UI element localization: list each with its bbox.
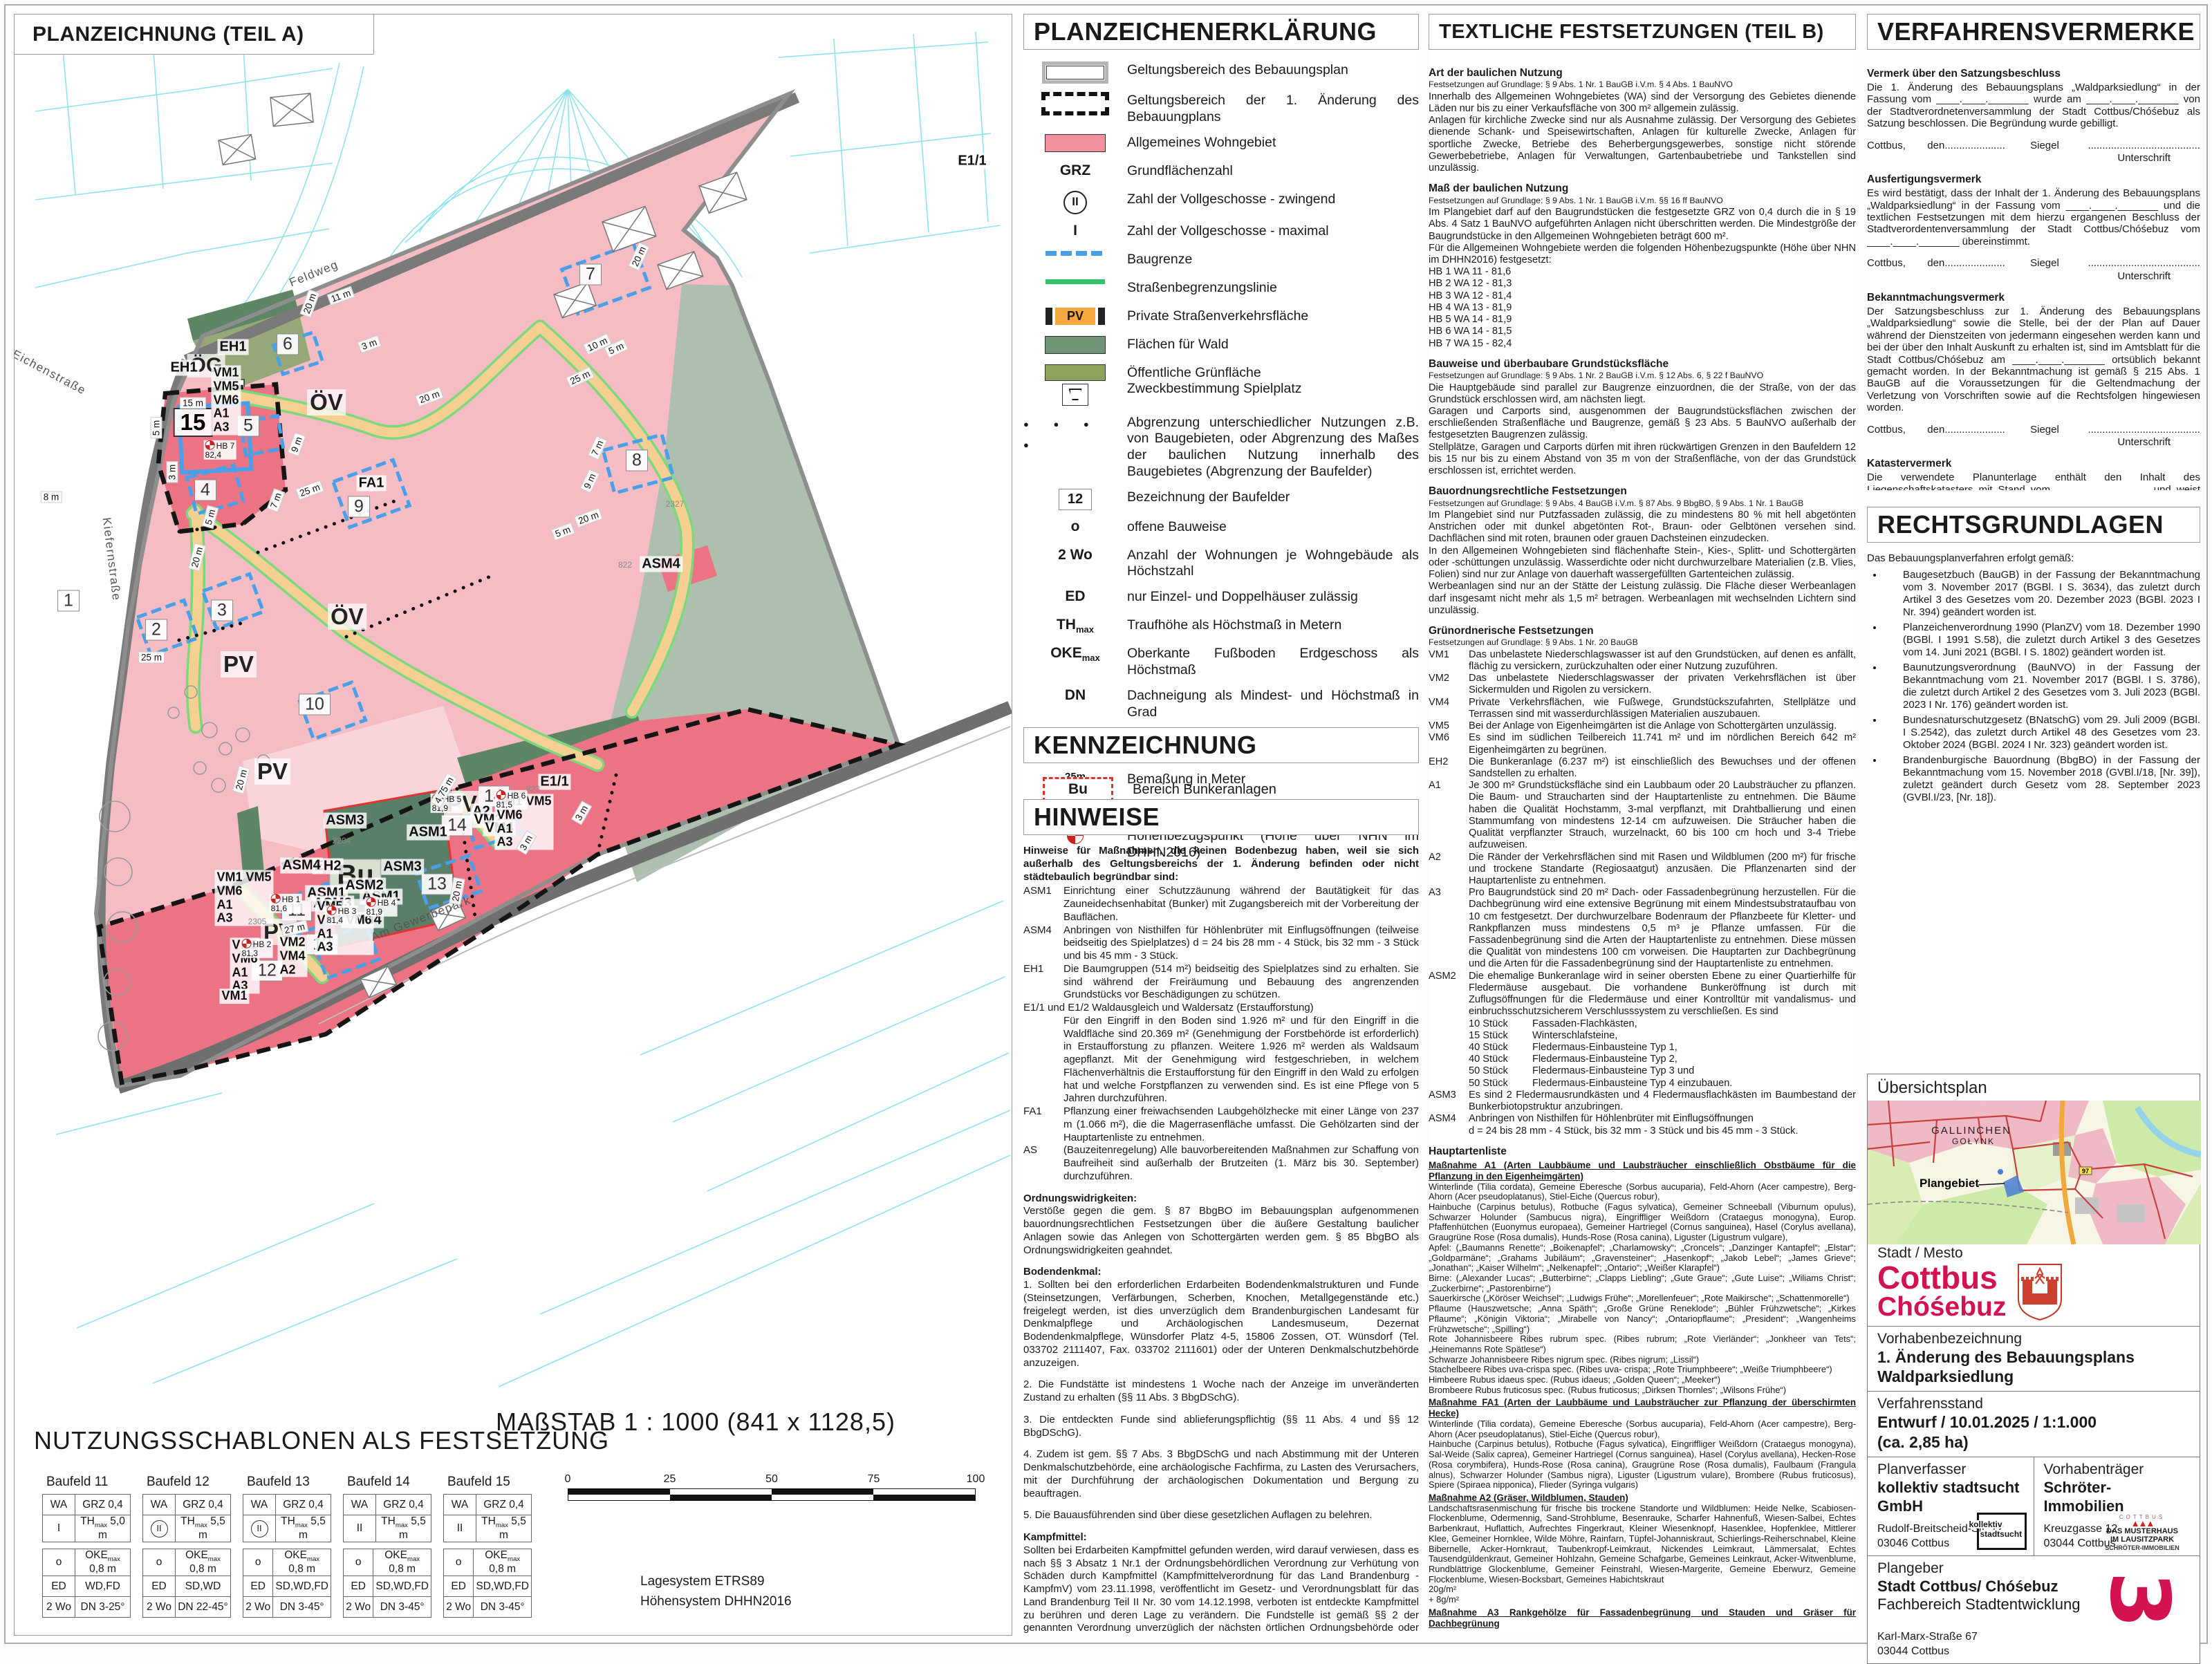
- map-label: ASM3: [381, 859, 424, 875]
- legend-symbol-text: ED: [1023, 588, 1127, 605]
- dimension-label: 5 m: [551, 523, 575, 541]
- legend-item: IIZahl der Vollgeschosse - zwingend: [1023, 190, 1419, 214]
- map-label: ASM3: [324, 813, 366, 829]
- baufeld-number: 15: [174, 408, 213, 437]
- stadt-name-sorbisch: Chóśebuz: [1877, 1293, 2006, 1322]
- legend-item: DNDachneigung als Mindest- und Höchstmaß…: [1023, 686, 1419, 721]
- legend-label: Baugrenze: [1127, 250, 1192, 268]
- dimension-label: 8 m: [41, 492, 62, 503]
- hinweise-title: HINWEISE: [1023, 799, 1419, 835]
- legend-label: Straßenbegrenzungslinie: [1127, 279, 1277, 297]
- right-column: VERFAHRENSVERMERKE Vermerk über den Satz…: [1867, 14, 2200, 1634]
- baufeld-number: 2: [145, 619, 167, 641]
- dimension-label: 20 m: [188, 543, 206, 571]
- plangeber-address: Karl-Marx-Straße 6703044 Cottbus: [1877, 1629, 2190, 1659]
- dimension-label: 20 m: [415, 387, 444, 407]
- lagesystem-line: Lagesystem ETRS89: [640, 1571, 792, 1591]
- dimension-label: 7 m: [267, 489, 285, 512]
- legend-label: Private Straßenverkehrsfläche: [1127, 307, 1308, 325]
- map-label: PV: [221, 651, 257, 677]
- rechtsgrundlagen-title: RECHTSGRUNDLAGEN: [1867, 507, 2200, 543]
- map-label: HB 2 81,3: [241, 939, 273, 958]
- map-label: 2204: [333, 836, 351, 845]
- baufeld-number: 8: [626, 450, 648, 471]
- legend-symbol-swatch: [1023, 335, 1127, 354]
- svg-text:GALLINCHEN: GALLINCHEN: [1931, 1125, 2011, 1137]
- legend-label: Öffentliche Grünfläche Zweckbestimmung S…: [1127, 364, 1302, 398]
- legend-label: Flächen für Wald: [1127, 335, 1229, 353]
- stadt-row: Stadt / Mesto Cottbus Chóśebuz: [1868, 1241, 2200, 1327]
- dimension-label: 7 m: [588, 436, 607, 460]
- rechtsgrundlagen-section: RECHTSGRUNDLAGEN Das Bebauungsplanverfah…: [1867, 507, 2200, 807]
- title-block: Übersichtsplan: [1867, 1074, 2200, 1664]
- kennzeichnung-title: KENNZEICHNUNG: [1023, 727, 1419, 763]
- legend-item: THmaxTraufhöhe als Höchstmaß in Metern: [1023, 616, 1419, 637]
- legend-item: Geltungsbereich des Bebauungsplan: [1023, 61, 1419, 84]
- map-label: ASM4: [280, 858, 323, 874]
- legend-symbol-text: THmax: [1023, 616, 1127, 635]
- dimension-label: 5 m: [202, 505, 219, 529]
- baufeld-table: Baufeld 15WAGRZ 0,4IITHmax 5,5 moOKEmax …: [443, 1475, 532, 1624]
- hoehenbezugspunkt-icon: [366, 897, 376, 907]
- legend-item: GRZGrundflächenzahl: [1023, 162, 1419, 183]
- legend-label: Oberkante Fußboden Erdgeschoss als Höchs…: [1127, 644, 1419, 679]
- signature-row: Cottbus,den.....................Siegel..…: [1867, 257, 2200, 282]
- vorhaben-label: Vorhabenbezeichnung: [1877, 1331, 2190, 1347]
- map-label: 823: [526, 784, 540, 794]
- map-label: HB 1 81,6: [270, 894, 302, 913]
- map-label: PV: [254, 758, 290, 785]
- uebersichtsplan-map: 97 GALLINCHEN GOŁYNK Plangebiet: [1868, 1101, 2201, 1244]
- legend-symbol-text: OKEmax: [1023, 644, 1127, 663]
- rechtsgrundlagen-body: Das Bebauungsplanverfahren erfolgt gemäß…: [1867, 552, 2200, 804]
- legend-symbol-og: [1023, 364, 1127, 406]
- legend-title: PLANZEICHENERKLÄRUNG: [1023, 14, 1419, 50]
- legend-symbol-line: [1023, 250, 1127, 256]
- legend-label: Allgemeines Wohngebiet: [1127, 133, 1276, 151]
- baufeld-table: Baufeld 13WAGRZ 0,4IITHmax 5,5 moOKEmax …: [243, 1475, 331, 1624]
- dimension-label: 20 m: [232, 765, 250, 794]
- legend-label: nur Einzel- und Doppelhäuser zulässig: [1127, 588, 1358, 606]
- map-label: E1/1: [956, 153, 988, 169]
- hoehensystem-line: Höhensystem DHHN2016: [640, 1591, 792, 1611]
- legend-item: Allgemeines Wohngebiet: [1023, 133, 1419, 154]
- baufeld-number: 4: [194, 480, 216, 501]
- legend-symbol-dots: ● ● ● ●: [1023, 413, 1127, 456]
- rechtsgrundlage-item: Baugesetzbuch (BauGB) in der Fassung der…: [1884, 569, 2200, 619]
- verfahren-heading: Ausfertigungsvermerk: [1867, 174, 2200, 186]
- plan-drawing: 1234567891011121213141415ÖVÖVPVPVPVPVBuÖ…: [15, 15, 1012, 1397]
- svg-text:GOŁYNK: GOŁYNK: [1952, 1137, 1995, 1146]
- map-label: EH1: [218, 339, 249, 355]
- dimension-label: 20 m: [628, 242, 649, 271]
- nutzungsschablonen-title: NUTZUNGSSCHABLONEN ALS FESTSETZUNG: [34, 1426, 609, 1455]
- vorhaben-line2: Waldparksiedlung: [1877, 1367, 2190, 1387]
- legend-label: Dachneigung als Mindest- und Höchstmaß i…: [1127, 686, 1419, 721]
- rechtsgrundlage-item: Brandenburgische Bauordnung (BbgBO) in d…: [1884, 754, 2200, 804]
- verfahren-heading: Katastervermerk: [1867, 458, 2200, 470]
- legend-item: Straßenbegrenzungslinie: [1023, 279, 1419, 299]
- baufeld-tables: Baufeld 11WAGRZ 0,4ITHmax 5,0 moOKEmax 0…: [42, 1475, 532, 1624]
- rechtsgrundlage-item: Planzeichenverordnung 1990 (PlanZV) vom …: [1884, 621, 2200, 659]
- map-label: ASM1: [407, 825, 449, 841]
- hinweise-section: HINWEISE Hinweise für Maßnahmen, die kei…: [1023, 799, 1419, 1633]
- uebersichtsplan: Übersichtsplan: [1868, 1074, 2200, 1241]
- legend-label: offene Bauweise: [1127, 518, 1227, 536]
- baufeld-number: 13: [421, 874, 453, 895]
- legend-label: Traufhöhe als Höchstmaß in Metern: [1127, 616, 1341, 634]
- rechtsgrundlagen-intro: Das Bebauungsplanverfahren erfolgt gemäß…: [1867, 552, 2200, 565]
- hoehenbezugspunkt-icon: [327, 906, 337, 915]
- teilb-body: Art der baulichen NutzungFestsetzungen a…: [1429, 59, 1856, 1629]
- kollektiv-stadtsucht-logo: kollektivstadtsucht: [1977, 1513, 2027, 1550]
- dimension-label: 3 m: [571, 801, 592, 825]
- cottbus-c3-logo: 3: [2107, 1571, 2172, 1628]
- map-label: VM2 VM4 A2: [277, 935, 307, 977]
- dimension-label: 15 m: [180, 398, 206, 409]
- verfahrensstand-line2: (ca. 2,85 ha): [1877, 1432, 2190, 1452]
- cottbus-crest-icon: [2017, 1263, 2063, 1321]
- planverfasser-label: Planverfasser: [1877, 1461, 2024, 1478]
- legend-label: Geltungsbereich des Bebauungsplan: [1127, 61, 1348, 79]
- plan-panel: 1234567891011121213141415ÖVÖVPVPVPVPVBuÖ…: [14, 14, 1012, 1636]
- legend-symbol-text: I: [1023, 222, 1127, 239]
- legend-symbol-circle: II: [1023, 190, 1127, 214]
- map-label: HB 4 81,9: [365, 897, 398, 917]
- legend-label: Anzahl der Wohnungen je Wohngebäude als …: [1127, 546, 1419, 581]
- rechtsgrundlage-item: Baunutzungsverordnung (BauNVO) in der Fa…: [1884, 662, 2200, 711]
- legend-item: OKEmaxOberkante Fußboden Erdgeschoss als…: [1023, 644, 1419, 679]
- baufeld-number: 9: [348, 496, 370, 518]
- hoehenbezugspunkt-icon: [271, 894, 281, 904]
- dimension-label: 5 m: [151, 418, 162, 439]
- baufeld-number: 7: [579, 264, 602, 286]
- legend-item: Geltungsbereich der 1. Änderung des Beba…: [1023, 91, 1419, 126]
- plangeber-row: Plangeber Stadt Cottbus/ Chóśebuz Fachbe…: [1868, 1556, 2200, 1663]
- map-label: VM1 VM5 VM6 A1 A3: [211, 366, 241, 436]
- kennzeichnung-item: Bu Bereich Bunkeranlagen: [1023, 777, 1419, 802]
- map-label: ASM4: [640, 557, 682, 572]
- vorhabentraeger-name: Schröter-Immobilien: [2044, 1478, 2191, 1516]
- legend-label: Grundflächenzahl: [1127, 162, 1233, 180]
- legend-label: Zahl der Vollgeschosse - maximal: [1127, 222, 1329, 240]
- map-label: ASM2: [343, 878, 386, 894]
- dimension-label: 3 m: [167, 462, 178, 483]
- dimension-label: 25 m: [566, 366, 595, 388]
- dimension-label: 25 m: [138, 652, 165, 664]
- map-label: 822: [618, 560, 632, 570]
- vorhaben-line1: 1. Änderung des Bebauungsplans: [1877, 1347, 2190, 1367]
- legend-label: Zahl der Vollgeschosse - zwingend: [1127, 190, 1335, 208]
- dimension-label: 11 m: [327, 286, 355, 306]
- verfahren-body: Vermerk über den SatzungsbeschlussDie 1.…: [1867, 58, 2200, 490]
- verfahren-heading: Bekanntmachungsvermerk: [1867, 292, 2200, 304]
- kennzeichnung-section: KENNZEICHNUNG Bu Bereich Bunkeranlagen: [1023, 727, 1419, 802]
- svg-text:Plangebiet: Plangebiet: [1920, 1177, 1979, 1190]
- schroeter-logo: COTTBUS ▲▲▲ DAS MUSTERHAUS IM LAUSITZPAR…: [2090, 1514, 2194, 1551]
- street-name: Feldweg: [288, 258, 341, 290]
- map-label: EH1: [169, 360, 200, 376]
- baufeld-table: Baufeld 14WAGRZ 0,4IITHmax 5,5 moOKEmax …: [343, 1475, 431, 1624]
- legend-item: EDnur Einzel- und Doppelhäuser zulässig: [1023, 588, 1419, 608]
- signature-row: Cottbus,den.....................Siegel..…: [1867, 424, 2200, 449]
- vorhabentraeger-cell: Vorhabenträger Schröter-Immobilien Kreuz…: [2034, 1457, 2200, 1555]
- planverfasser-name: kollektiv stadtsucht GmbH: [1877, 1478, 2024, 1516]
- legend-item: PVPrivate Straßenverkehrsfläche: [1023, 307, 1419, 328]
- legend-item: IZahl der Vollgeschosse - maximal: [1023, 222, 1419, 243]
- teilb-column: TEXTLICHE FESTSETZUNGEN (TEIL B) Art der…: [1429, 14, 1856, 1634]
- map-label: E1/1: [538, 774, 570, 790]
- legend-item: ● ● ● ●Abgrenzung unterschiedlicher Nutz…: [1023, 413, 1419, 480]
- verfahrensstand-row: Verfahrensstand Entwurf / 10.01.2025 / 1…: [1868, 1392, 2200, 1457]
- planverfasser-cell: Planverfasser kollektiv stadtsucht GmbH …: [1868, 1457, 2034, 1555]
- street-name: Eichenstraße: [14, 347, 89, 398]
- dimension-label: 20 m: [300, 289, 320, 318]
- legend-symbol-text: 2 Wo: [1023, 546, 1127, 563]
- hoehenbezugspunkt-icon: [496, 790, 506, 800]
- dimension-label: 9 m: [580, 469, 600, 494]
- legend-label: Bezeichnung der Baufelder: [1127, 488, 1290, 506]
- legend-symbol-boxnum: 12: [1023, 488, 1127, 510]
- verfahren-heading: Vermerk über den Satzungsbeschluss: [1867, 68, 2200, 80]
- baufeld-number: 6: [277, 334, 299, 355]
- legend-item: Öffentliche Grünfläche Zweckbestimmung S…: [1023, 364, 1419, 406]
- verfahren-title: VERFAHRENSVERMERKE: [1867, 14, 2200, 50]
- map-label: 2327: [666, 499, 685, 509]
- signature-row: Cottbus,den.....................Siegel..…: [1867, 140, 2200, 165]
- lagesystem-note: Lagesystem ETRS89 Höhensystem DHHN2016: [640, 1571, 792, 1612]
- hoehenbezugspunkt-icon: [242, 939, 252, 948]
- legend-item: Baugrenze: [1023, 250, 1419, 271]
- scale-bar: 0255075100: [568, 1473, 976, 1501]
- legend-symbol-line: [1023, 279, 1127, 284]
- legend-symbol-text: o: [1023, 518, 1127, 535]
- street-name: Kiefernstraße: [100, 516, 124, 601]
- legend-item: ooffene Bauweise: [1023, 518, 1419, 539]
- legend-symbol-pv: PV: [1023, 307, 1127, 325]
- legend-item: 12Bezeichnung der Baufelder: [1023, 488, 1419, 510]
- verfasser-traeger-row: Planverfasser kollektiv stadtsucht GmbH …: [1868, 1457, 2200, 1556]
- bunker-label: Bereich Bunkeranlagen: [1133, 782, 1276, 798]
- svg-text:97: 97: [2082, 1168, 2089, 1175]
- legend-symbol-swatch: [1023, 133, 1127, 152]
- map-label: FA1: [357, 476, 387, 492]
- baufeld-table: Baufeld 11WAGRZ 0,4ITHmax 5,0 moOKEmax 0…: [42, 1475, 131, 1624]
- teilb-title: TEXTLICHE FESTSETZUNGEN (TEIL B): [1429, 14, 1856, 50]
- legend-item: 2 WoAnzahl der Wohnungen je Wohngebäude …: [1023, 546, 1419, 581]
- map-label: HB 7 82,4: [204, 440, 236, 460]
- bunker-symbol: Bu: [1043, 777, 1113, 802]
- map-label: ÖV: [328, 604, 366, 630]
- dimension-label: 3 m: [357, 335, 381, 353]
- map-label: ÖV: [307, 389, 346, 415]
- map-label: 2305: [248, 917, 267, 926]
- baufeld-number: 3: [211, 600, 233, 621]
- legend-symbol-text: GRZ: [1023, 162, 1127, 179]
- legend-item: Flächen für Wald: [1023, 335, 1419, 356]
- dimension-label: 9 m: [288, 433, 306, 456]
- legend-label: Geltungsbereich der 1. Änderung des Beba…: [1127, 91, 1419, 126]
- baufeld-number: 10: [299, 694, 331, 716]
- verfahrensstand-line1: Entwurf / 10.01.2025 / 1:1.000: [1877, 1412, 2190, 1432]
- legend-column: PLANZEICHENERKLÄRUNG Geltungsbereich des…: [1023, 14, 1419, 1634]
- legend-label: Abgrenzung unterschiedlicher Nutzungen z…: [1127, 413, 1419, 480]
- rechtsgrundlage-item: Bundesnaturschutzgesetz (BNatschG) vom 2…: [1884, 714, 2200, 751]
- vorhabentraeger-label: Vorhabenträger: [2044, 1461, 2191, 1478]
- dimension-label: 25 m: [295, 480, 324, 501]
- baufeld-table: Baufeld 12WAGRZ 0,4IITHmax 5,5 moOKEmax …: [142, 1475, 231, 1624]
- legend-symbol-dashrect: [1023, 91, 1127, 115]
- verfahrensstand-label: Verfahrensstand: [1877, 1396, 2190, 1412]
- vorhaben-row: Vorhabenbezeichnung 1. Änderung des Beba…: [1868, 1327, 2200, 1392]
- uebersichtsplan-title: Übersichtsplan: [1877, 1078, 2190, 1098]
- stadt-name-de: Cottbus: [1877, 1263, 2006, 1293]
- map-label: VM1: [219, 989, 249, 1004]
- hoehenbezugspunkt-icon: [205, 440, 215, 450]
- legend-symbol-frame2: [1023, 61, 1127, 84]
- hinweise-body: Hinweise für Maßnahmen, die keinen Boden…: [1023, 845, 1419, 1633]
- map-label: HB 3 81,4: [326, 906, 358, 925]
- legend-symbol-text: DN: [1023, 686, 1127, 704]
- baufeld-number: 1: [57, 590, 80, 612]
- plan-title: PLANZEICHNUNG (TEIL A): [15, 15, 374, 55]
- map-label: HB 6 81,5: [495, 790, 528, 810]
- dimension-label: 20 m: [574, 508, 603, 528]
